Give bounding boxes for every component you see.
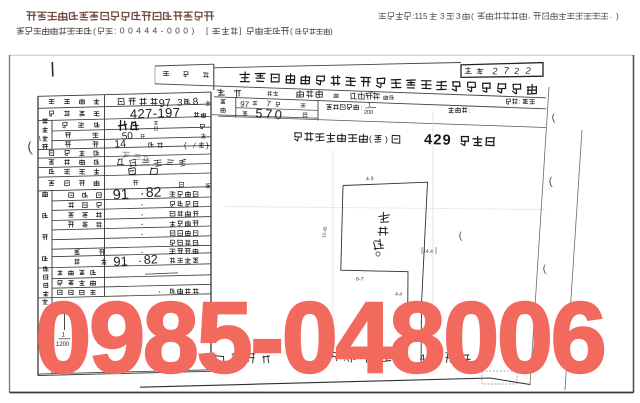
svg-text:2: 2 xyxy=(492,66,499,78)
svg-text:2: 2 xyxy=(514,66,520,76)
svg-text:14: 14 xyxy=(114,138,126,151)
svg-text:2: 2 xyxy=(524,65,531,77)
svg-text:8: 8 xyxy=(192,97,199,108)
svg-text:(: ( xyxy=(458,231,463,242)
svg-text:,: , xyxy=(528,10,530,20)
svg-text:(: ( xyxy=(184,141,187,150)
svg-text:): ) xyxy=(616,11,619,21)
svg-text:91: 91 xyxy=(113,254,128,269)
svg-text:): ) xyxy=(206,141,209,150)
svg-text:427-197: 427-197 xyxy=(130,105,181,122)
svg-text:/: / xyxy=(193,141,197,150)
svg-text::00444-000): :00444-000) xyxy=(114,26,198,36)
svg-text:429: 429 xyxy=(424,132,452,149)
svg-text:0985-048006: 0985-048006 xyxy=(35,282,604,394)
svg-text:200: 200 xyxy=(364,110,373,116)
svg-text:91: 91 xyxy=(112,187,129,204)
svg-text:]: ] xyxy=(239,26,241,36)
svg-text:): ) xyxy=(330,27,333,36)
svg-text:·: · xyxy=(141,229,144,240)
svg-text:(: ( xyxy=(542,264,547,275)
svg-text:[: [ xyxy=(206,26,209,36)
svg-text:.: . xyxy=(610,10,612,20)
svg-text:4-3: 4-3 xyxy=(366,176,374,182)
svg-text:570: 570 xyxy=(255,106,285,123)
svg-text:10.45: 10.45 xyxy=(321,226,328,239)
svg-text:82: 82 xyxy=(146,183,162,200)
svg-text:(: ( xyxy=(369,134,372,144)
svg-text:3: 3 xyxy=(440,11,445,21)
svg-text:82: 82 xyxy=(143,252,158,267)
svg-text:(: ( xyxy=(471,11,474,21)
svg-text::: : xyxy=(519,99,521,106)
svg-text:97: 97 xyxy=(240,100,250,110)
svg-text:): ) xyxy=(385,134,388,144)
svg-text:(: ( xyxy=(93,26,96,36)
svg-text:(: ( xyxy=(548,176,553,188)
svg-text:3: 3 xyxy=(456,11,461,21)
svg-text:(: ( xyxy=(551,113,556,124)
svg-text:14.4: 14.4 xyxy=(423,249,433,256)
svg-text::: : xyxy=(469,108,471,115)
svg-text::: : xyxy=(361,105,363,112)
svg-text:7: 7 xyxy=(502,66,510,78)
svg-text:(: ( xyxy=(290,27,293,36)
svg-text:·: · xyxy=(138,254,142,268)
svg-text:(: ( xyxy=(26,138,33,155)
svg-text::115: :115 xyxy=(412,11,428,21)
svg-text:·: · xyxy=(140,186,144,201)
